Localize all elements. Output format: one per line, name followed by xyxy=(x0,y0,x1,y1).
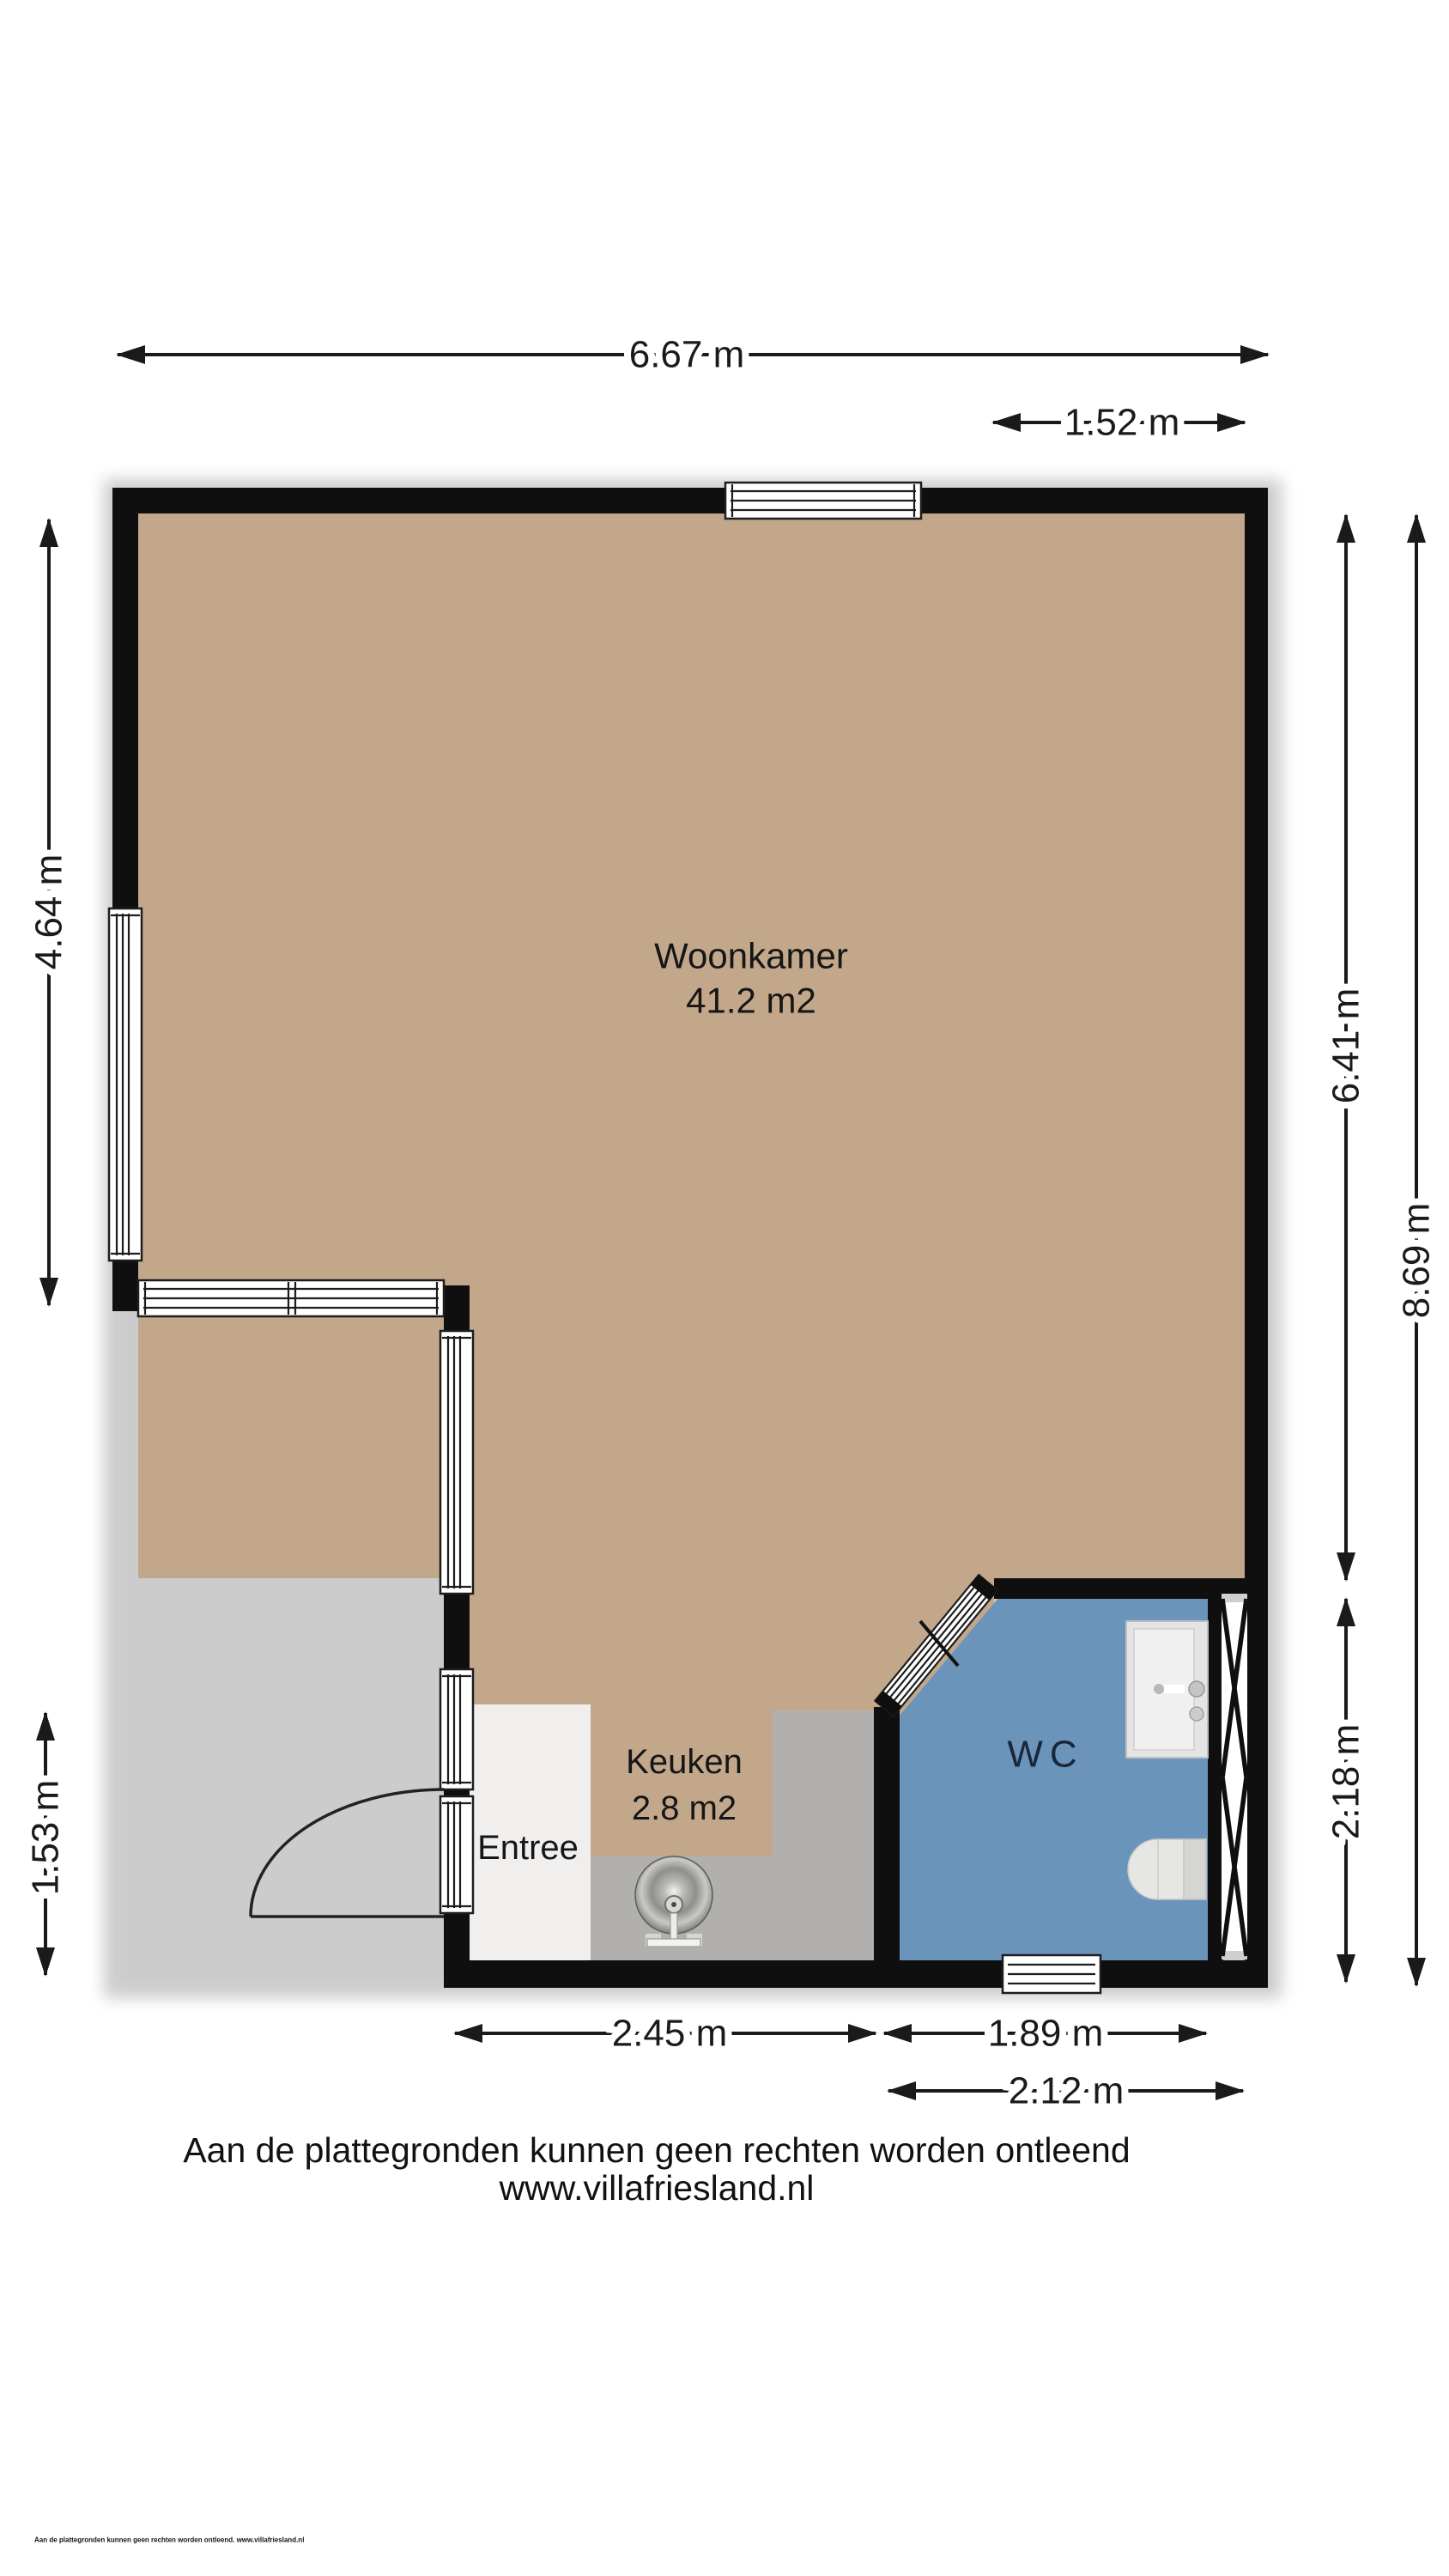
wc-toilet xyxy=(1128,1839,1206,1899)
woonkamer-area: 41.2 m2 xyxy=(686,981,816,1021)
window-step xyxy=(138,1280,444,1316)
window-entry-door-glazing xyxy=(440,1796,473,1913)
dim-bottom-right-label: 2.12 m xyxy=(1009,2070,1125,2112)
window-left xyxy=(109,908,142,1261)
wall-top xyxy=(112,488,1268,513)
dim-right-total-label: 8.69 m xyxy=(1396,1203,1438,1319)
keuken-label: Keuken xyxy=(626,1743,743,1781)
wall-right xyxy=(1245,488,1268,1988)
kitchen-counter-bottom xyxy=(591,1856,874,1960)
window-top xyxy=(725,483,921,519)
window-lower-left-2 xyxy=(440,1669,473,1789)
woonkamer-label: Woonkamer xyxy=(654,936,848,976)
window-wc-right-hatched xyxy=(1222,1594,1247,1959)
window-wc-bottom xyxy=(1003,1955,1100,1993)
wall-wc-right-strip xyxy=(1208,1578,1223,1960)
wall-wc-left xyxy=(874,1707,900,1960)
entree-label: Entree xyxy=(477,1829,579,1867)
fine-print-text: Aan de plattegronden kunnen geen rechten… xyxy=(34,2537,304,2544)
dim-bottom-left-label: 2.45 m xyxy=(612,2013,728,2055)
website-text: www.villafriesland.nl xyxy=(499,2168,815,2208)
dim-right-lower-label: 2.18 m xyxy=(1325,1724,1367,1840)
disclaimer-text: Aan de plattegronden kunnen geen rechten… xyxy=(183,2130,1130,2170)
dim-left-upper-label: 4.64 m xyxy=(28,854,70,970)
window-lower-left-1 xyxy=(440,1331,473,1594)
floor-plan-svg: Woonkamer 41.2 m2 Keuken 2.8 m2 Entree W… xyxy=(0,0,1449,2576)
wall-bottom xyxy=(444,1960,1268,1988)
wc-label: WC xyxy=(1007,1734,1083,1776)
wall-wc-top xyxy=(994,1578,1245,1599)
dim-total-width-label: 6.67 m xyxy=(629,334,745,376)
dim-bottom-middle-label: 1.89 m xyxy=(988,2013,1104,2055)
wc-washbasin xyxy=(1126,1621,1208,1758)
dim-left-lower-label: 1.53 m xyxy=(25,1780,67,1896)
keuken-area: 2.8 m2 xyxy=(632,1789,737,1827)
dim-right-upper-label: 6.41 m xyxy=(1325,988,1367,1104)
dim-top-right-label: 1.52 m xyxy=(1064,402,1180,444)
woonkamer-floor xyxy=(138,513,1245,1578)
